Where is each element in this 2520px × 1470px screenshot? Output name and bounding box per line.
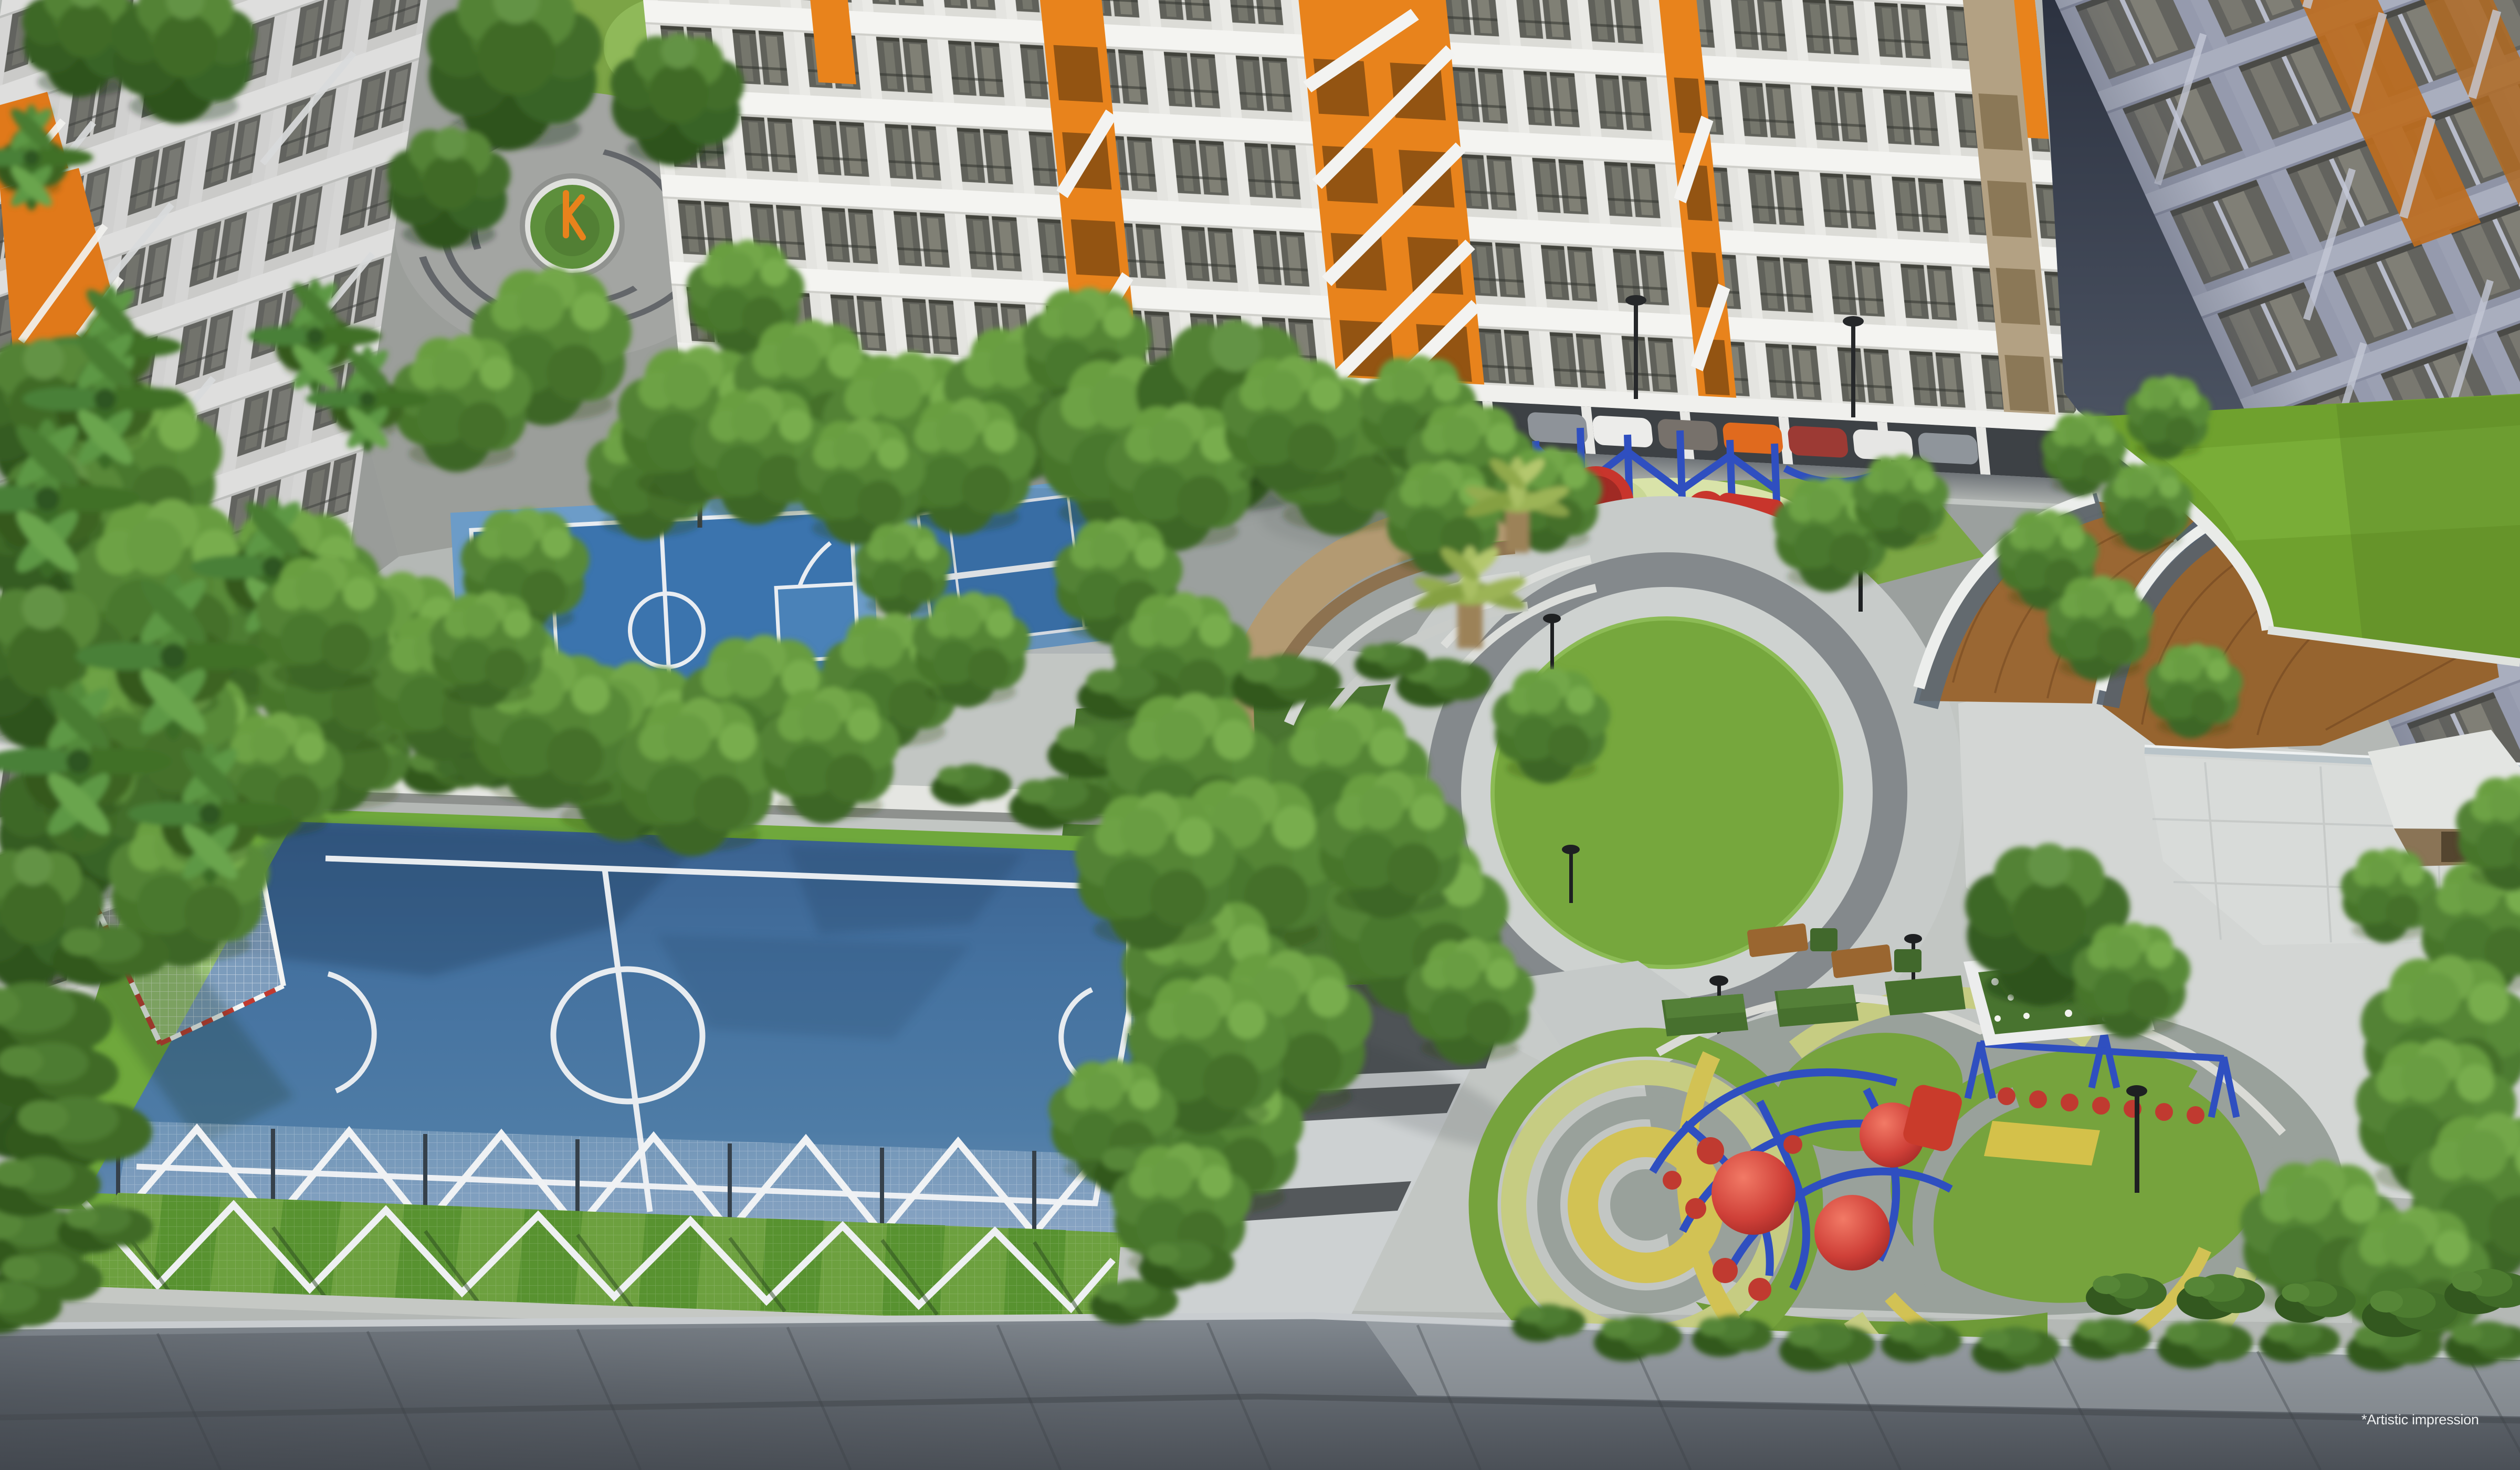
svg-text:*Artistic impression: *Artistic impression: [2361, 1412, 2479, 1427]
